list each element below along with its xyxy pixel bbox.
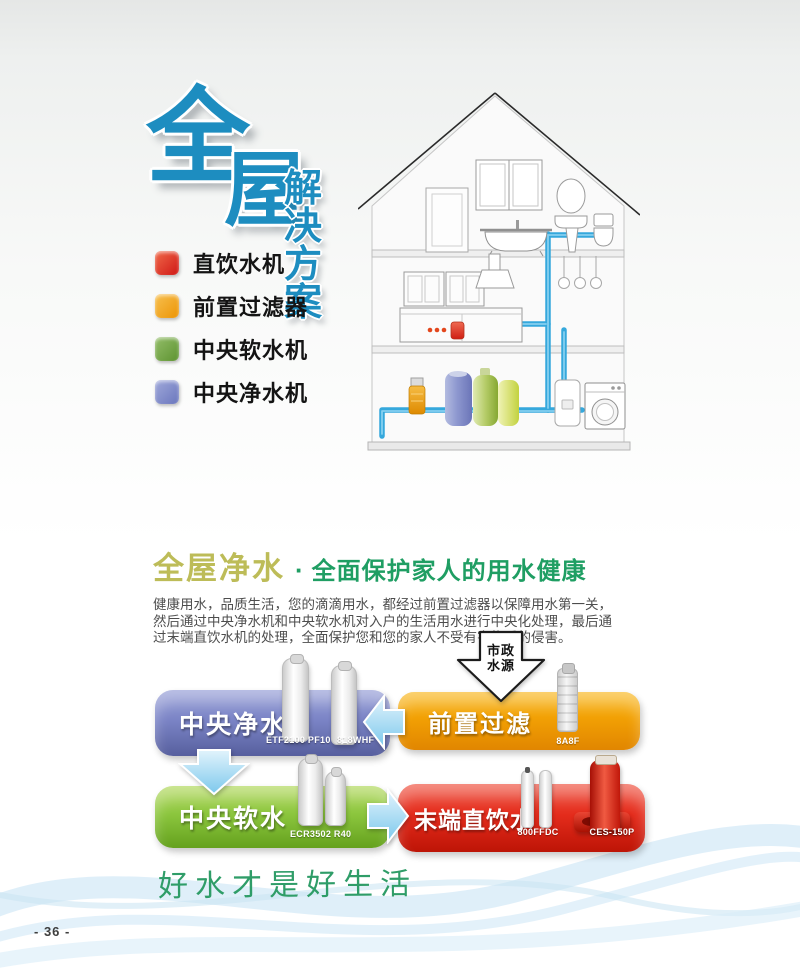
legend-label: 中央净水机 xyxy=(193,376,308,408)
stove-knobs xyxy=(428,328,447,333)
window-icon xyxy=(476,160,542,210)
water-heater-icon xyxy=(555,380,580,426)
intro-line: 过末端直饮水机的处理，全面保护您和您的家人不受有害物质的侵害。 xyxy=(153,630,612,647)
bathroom-door xyxy=(426,188,468,252)
legend-item-drinking: 直饮水机 xyxy=(155,250,308,276)
legend-label: 直饮水机 xyxy=(193,247,285,279)
heading-secondary: 全面保护家人的用水健康 xyxy=(312,551,587,586)
page-number: - 36 - xyxy=(34,924,70,939)
undersink-drinking-unit xyxy=(451,322,464,339)
legend-item-softener: 中央软水机 xyxy=(155,336,308,362)
central-purifier-tank-icon xyxy=(445,371,472,426)
legend-item-purifier: 中央净水机 xyxy=(155,379,308,405)
legend-swatch-red-icon xyxy=(155,251,179,275)
legend-item-prefilter: 前置过滤器 xyxy=(155,293,308,319)
washing-machine-icon xyxy=(585,383,625,429)
heading-separator: · xyxy=(295,555,304,586)
wave-decoration xyxy=(0,728,800,971)
toilet-icon xyxy=(594,214,613,246)
legend-swatch-orange-icon xyxy=(155,294,179,318)
pre-filter-product-icon xyxy=(557,668,578,732)
legend: 直饮水机 前置过滤器 中央软水机 中央净水机 xyxy=(155,250,308,422)
house-illustration xyxy=(358,84,640,462)
legend-label: 前置过滤器 xyxy=(193,290,308,322)
pre-filter-icon xyxy=(409,378,425,414)
slogan: 好水才是好生活 xyxy=(158,859,417,905)
legend-swatch-green-icon xyxy=(155,337,179,361)
legend-label: 中央软水机 xyxy=(193,333,308,365)
intro-line: 健康用水，品质生活，您的滴滴用水，都经过前置过滤器以保障用水第一关， xyxy=(153,597,612,614)
intro-paragraph: 健康用水，品质生活，您的滴滴用水，都经过前置过滤器以保障用水第一关， 然后通过中… xyxy=(153,597,612,647)
intro-section: 全屋净水 · 全面保护家人的用水健康 健康用水，品质生活，您的滴滴用水，都经过前… xyxy=(153,543,612,647)
brochure-page: 全 屋 解决方案 直饮水机 前置过滤器 中央软水机 中央净水机 xyxy=(0,0,800,971)
section-heading: 全屋净水 · 全面保护家人的用水健康 xyxy=(153,543,612,588)
municipal-source-label: 市政 水源 xyxy=(455,643,547,673)
intro-line: 然后通过中央净水机和中央软水机对入户的生活用水进行中央化处理，最后通 xyxy=(153,614,612,631)
legend-swatch-blue-icon xyxy=(155,380,179,404)
heading-primary: 全屋净水 xyxy=(153,543,285,588)
source-label-line2: 水源 xyxy=(455,658,547,673)
mirror-icon xyxy=(557,179,585,213)
